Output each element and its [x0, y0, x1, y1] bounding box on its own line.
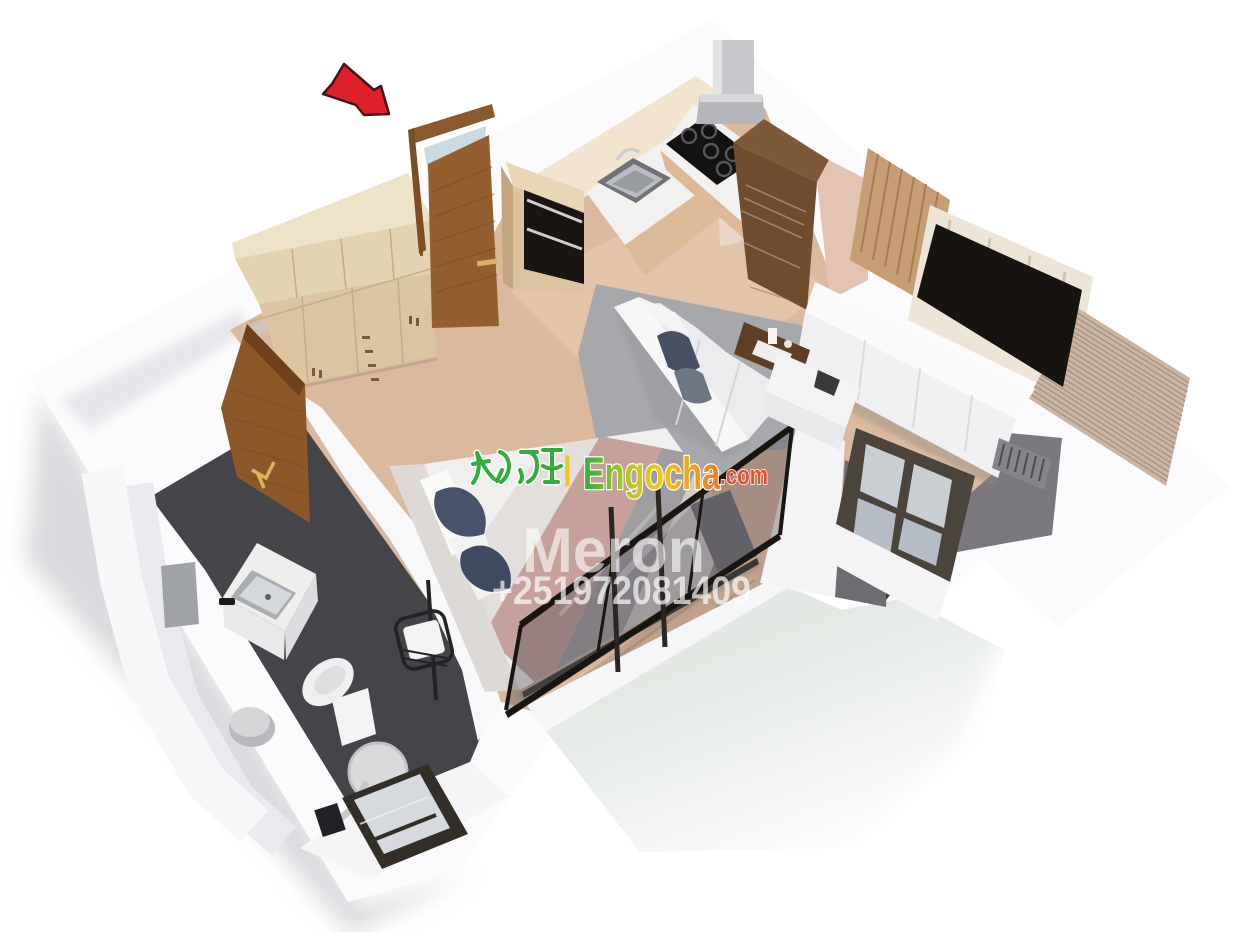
svg-text:+251972081409: +251972081409: [492, 569, 751, 613]
svg-text:|: |: [563, 450, 572, 486]
svg-text:.com: .com: [720, 460, 768, 490]
svg-text:Engocha: Engocha: [583, 448, 721, 499]
